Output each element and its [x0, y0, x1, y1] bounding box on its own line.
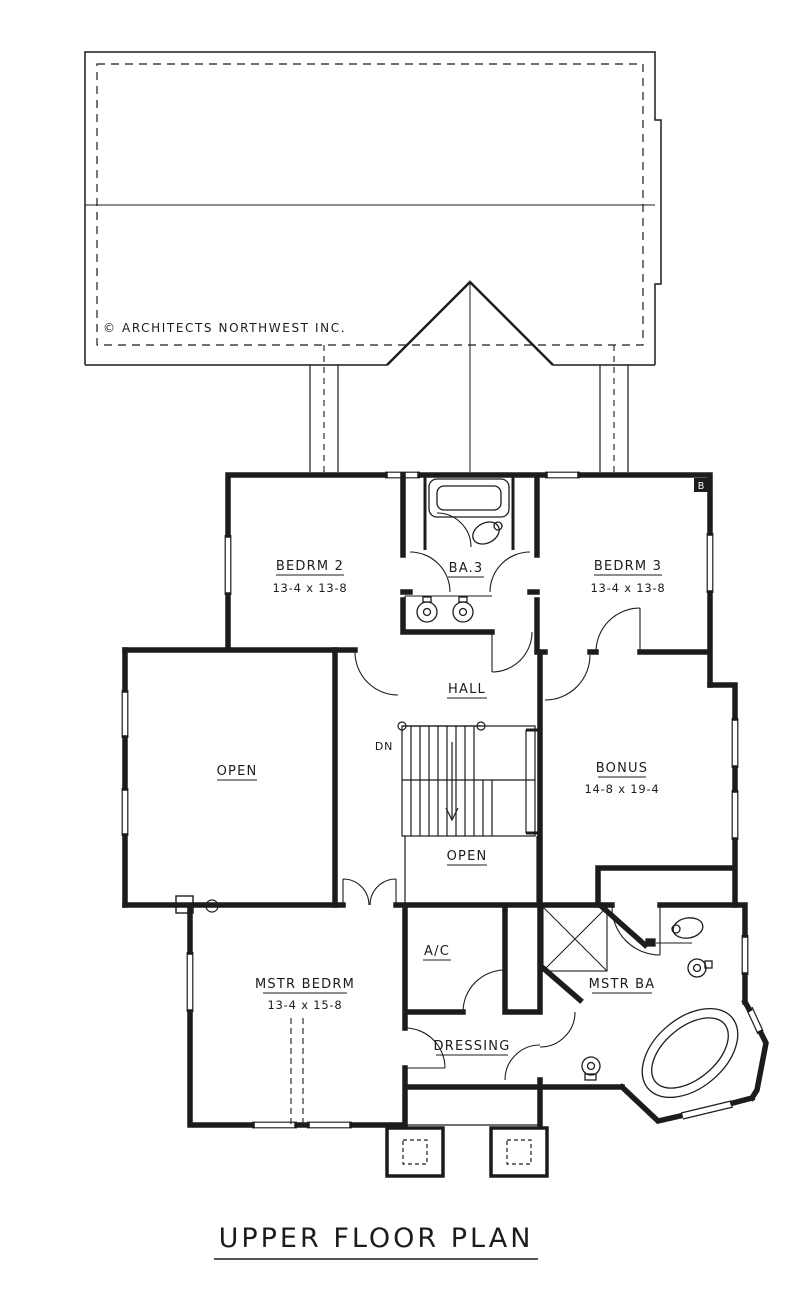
mstr-bedrm-label: MSTR BEDRM — [255, 977, 355, 992]
tub-room-door — [437, 513, 471, 547]
open-below-edges — [405, 836, 537, 903]
sink-drain-2 — [460, 609, 467, 616]
mstr-sink-icon-2 — [582, 1057, 600, 1075]
details — [176, 896, 547, 1176]
floor-plan-sheet: © ARCHITECTS NORTHWEST INC. — [0, 0, 800, 1297]
bath-entry-door — [492, 632, 532, 672]
porch-post-left — [387, 1128, 443, 1176]
ac-label: A/C — [424, 944, 450, 959]
spa-tub-inner — [639, 1004, 741, 1102]
sink-tap-2 — [459, 597, 467, 602]
spa-tub-icon — [625, 991, 754, 1115]
walls-upper-band — [125, 475, 710, 685]
bedrm2-dims: 13-4 x 13-8 — [272, 581, 347, 595]
bedrm3-label: BEDRM 3 — [594, 559, 662, 574]
mstr-sink-drain — [694, 965, 701, 972]
mstr-sink-icon — [688, 959, 706, 977]
bonus-door — [545, 655, 590, 700]
mstr-sink-drain-2 — [588, 1063, 595, 1070]
ceiling-break-dashed — [291, 1018, 303, 1125]
copyright-text: © ARCHITECTS NORTHWEST INC. — [103, 321, 346, 335]
roof-outline-group — [85, 52, 661, 472]
shower-x — [543, 907, 607, 971]
bedrm2-door — [355, 652, 398, 695]
sink-icon — [417, 602, 437, 622]
window-lines — [122, 472, 763, 1128]
bathtub-icon — [429, 479, 509, 517]
tp-holder — [646, 939, 655, 946]
porch-post-right — [491, 1128, 547, 1176]
upper-floor-plan-drawing: © ARCHITECTS NORTHWEST INC. — [0, 0, 800, 1297]
bath-label: BA.3 — [449, 561, 484, 576]
sink-drain — [424, 609, 431, 616]
toilet-mstr-icon — [671, 916, 704, 941]
mstr-ba-door — [612, 907, 660, 955]
roof-wall-connectors-dashed — [324, 345, 614, 472]
hall-label: HALL — [448, 682, 486, 697]
sink-tap — [423, 597, 431, 602]
mstr-ba-label: MSTR BA — [589, 977, 656, 992]
bedrm2-label: BEDRM 2 — [276, 559, 344, 574]
sink-icon-2 — [453, 602, 473, 622]
dressing-to-ba-door — [540, 1012, 575, 1047]
vanity-counter — [405, 596, 492, 630]
bath-double-swing-left — [410, 552, 450, 592]
sheet-title: UPPER FLOOR PLAN — [219, 1223, 534, 1254]
door-swings — [343, 513, 660, 1080]
window-schedule-marker-label: B — [698, 481, 705, 492]
bedrm3-dims: 13-4 x 13-8 — [590, 581, 665, 595]
windows — [122, 472, 763, 1128]
bonus-label: BONUS — [596, 761, 648, 776]
roof-wall-connectors — [310, 365, 628, 472]
ac-door — [463, 970, 505, 1012]
roof-outline — [85, 52, 661, 365]
stair-treads-upper — [411, 726, 474, 780]
open-center-label: OPEN — [447, 849, 488, 864]
porch-post-left-dashed — [403, 1140, 427, 1164]
stair-outline — [402, 726, 535, 836]
dressing-label: DRESSING — [434, 1039, 511, 1054]
mstr-bedrm-dims: 13-4 x 15-8 — [267, 998, 342, 1012]
mstr-bedrm-double-door — [343, 879, 396, 905]
open-left-label: OPEN — [217, 764, 258, 779]
bonus-dims: 14-8 x 19-4 — [584, 782, 659, 796]
stairs-dn-label: DN — [375, 740, 393, 753]
bathtub-inner — [437, 486, 501, 510]
stairs — [398, 722, 537, 903]
porch-post-right-dashed — [507, 1140, 531, 1164]
bedrm3-door — [596, 608, 640, 652]
bath-double-swing-right — [490, 552, 530, 592]
